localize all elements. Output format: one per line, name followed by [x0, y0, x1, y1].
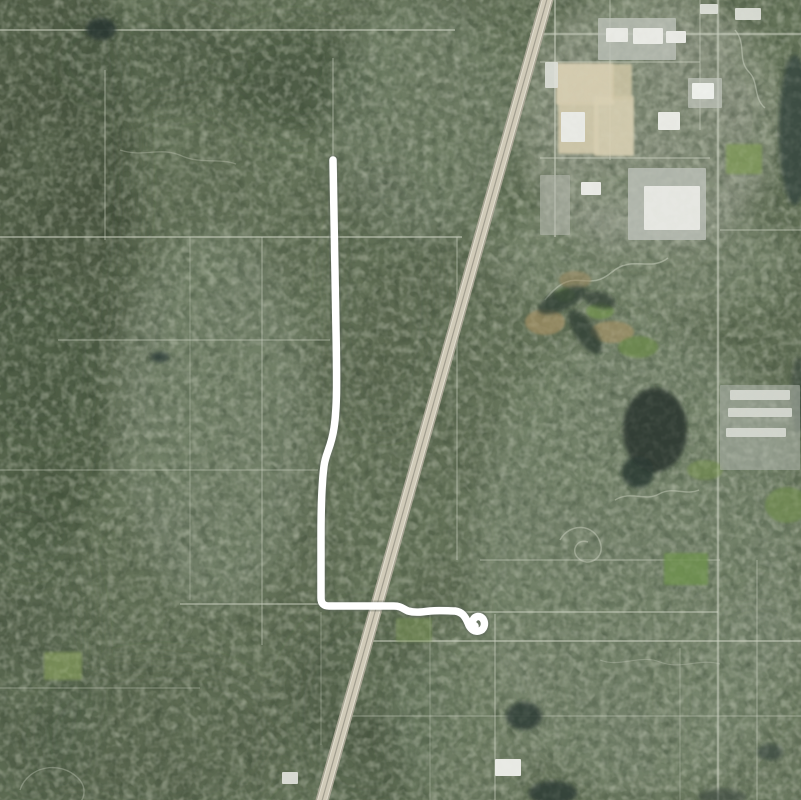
- map-canvas[interactable]: [0, 0, 801, 800]
- unifying-grain: [0, 0, 801, 800]
- satellite-map: [0, 0, 801, 800]
